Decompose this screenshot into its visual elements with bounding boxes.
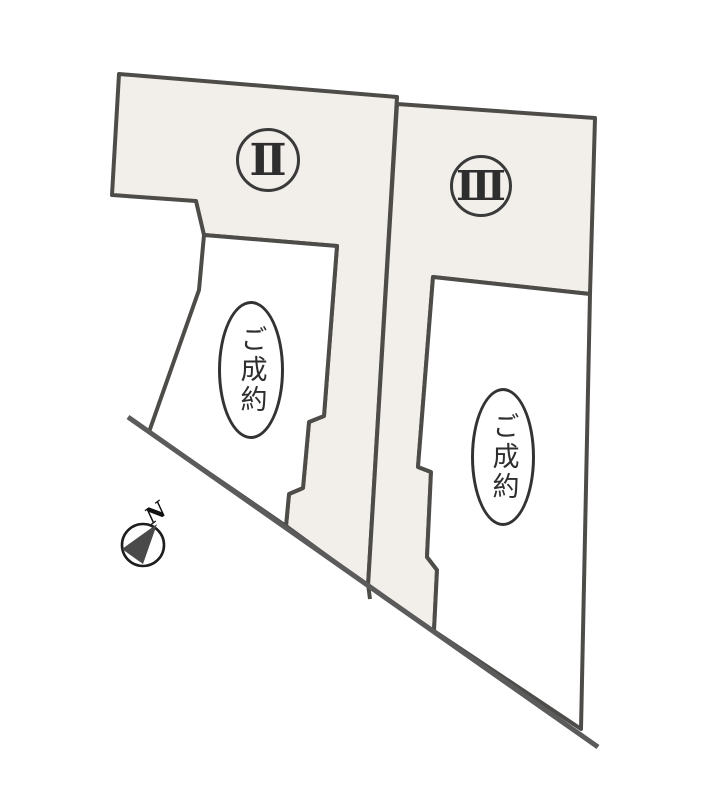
site-plan-drawing (0, 0, 704, 792)
lot-2-badge: Ⅱ (236, 128, 300, 192)
lot-3-numeral: Ⅲ (456, 162, 506, 210)
lot-2-status-text: ご成約 (232, 325, 271, 415)
compass-icon (122, 524, 164, 566)
lot-3-sold-label: ご成約 (471, 388, 535, 526)
lot-2-numeral: Ⅱ (249, 135, 286, 186)
lot-3-status-text: ご成約 (484, 412, 523, 502)
lot-2-sold-label: ご成約 (218, 301, 284, 439)
site-plan-canvas: Ⅱ Ⅲ ご成約 ご成約 N (0, 0, 704, 792)
lot-3-badge: Ⅲ (450, 155, 512, 217)
